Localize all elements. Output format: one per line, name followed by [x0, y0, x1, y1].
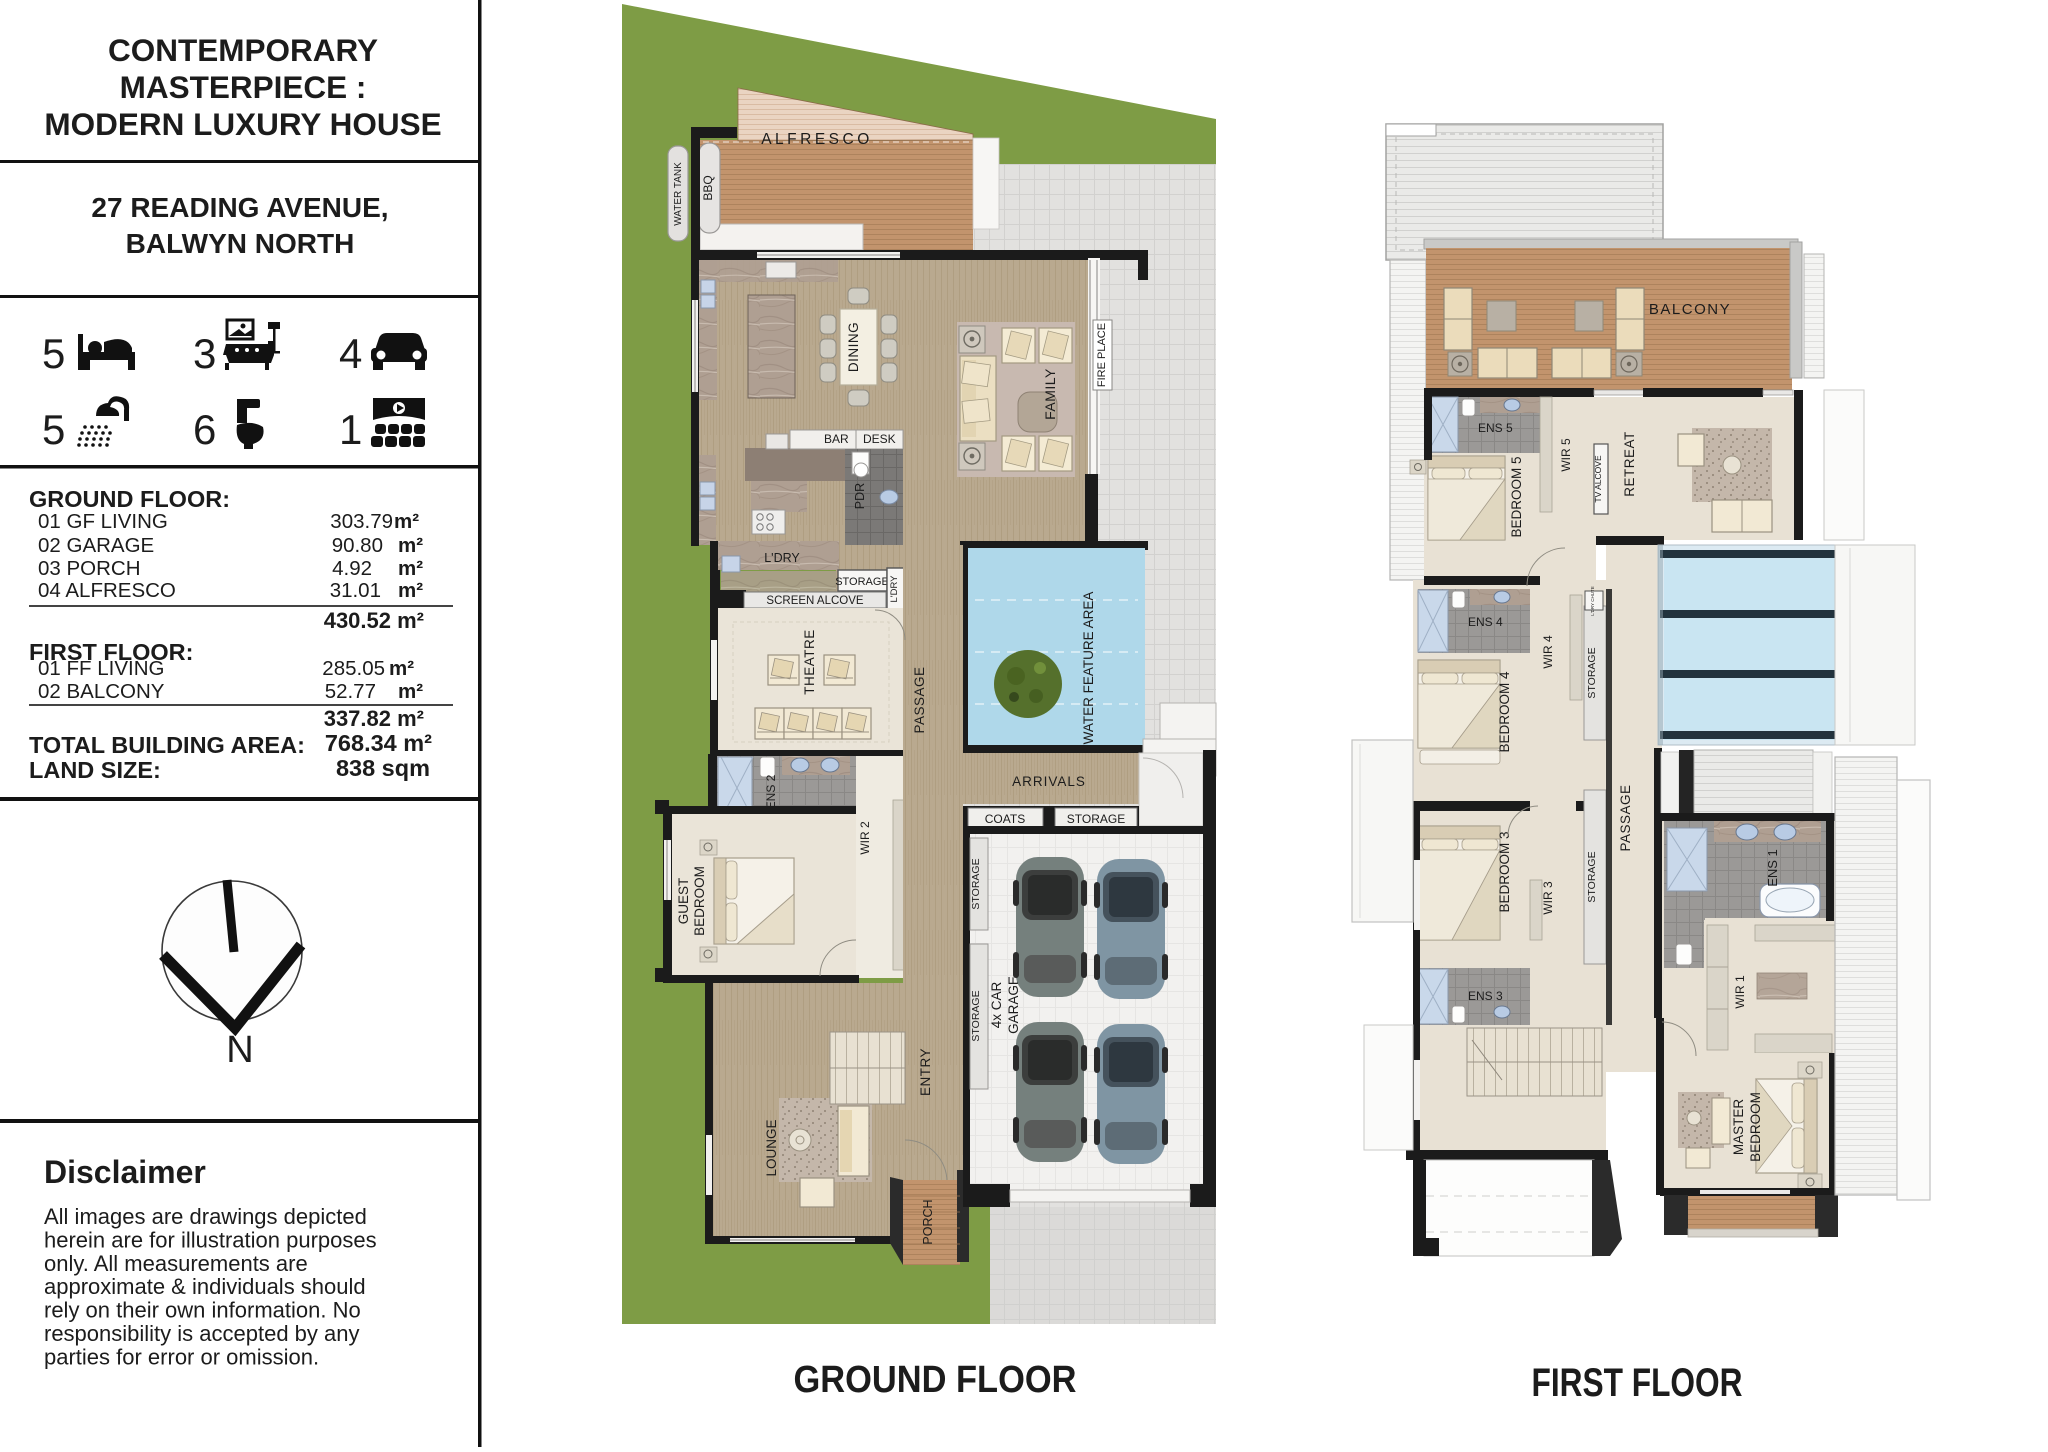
svg-text:FIRST FLOOR: FIRST FLOOR	[1532, 1361, 1743, 1405]
svg-text:WIR 3: WIR 3	[1541, 881, 1555, 915]
svg-text:COATS: COATS	[985, 812, 1025, 826]
svg-text:01 FF LIVING: 01 FF LIVING	[38, 657, 164, 680]
svg-text:LOUNGE: LOUNGE	[764, 1119, 779, 1176]
svg-text:THEATRE: THEATRE	[802, 629, 817, 695]
svg-text:ENTRY: ENTRY	[918, 1048, 933, 1096]
svg-text:SCREEN ALCOVE: SCREEN ALCOVE	[766, 595, 863, 607]
svg-text:BEDROOM 5: BEDROOM 5	[1509, 456, 1524, 537]
svg-text:02 GARAGE: 02 GARAGE	[38, 534, 154, 557]
svg-text:4x CAR: 4x CAR	[989, 981, 1004, 1028]
svg-text:CONTEMPORARY: CONTEMPORARY	[108, 32, 378, 68]
svg-text:5: 5	[42, 406, 65, 453]
svg-text:BEDROOM 3: BEDROOM 3	[1497, 831, 1512, 912]
svg-text:FAMILY: FAMILY	[1042, 368, 1058, 420]
svg-text:303.79: 303.79	[330, 510, 393, 533]
svg-text:PASSAGE: PASSAGE	[912, 666, 927, 733]
svg-text:PASSAGE: PASSAGE	[1618, 784, 1633, 851]
svg-text:GUEST: GUEST	[676, 878, 691, 925]
svg-text:27 READING AVENUE,: 27 READING AVENUE,	[91, 192, 388, 223]
svg-text:rely on their own information.: rely on their own information. No	[44, 1298, 361, 1323]
svg-text:31.01: 31.01	[330, 579, 381, 602]
svg-text:BEDROOM: BEDROOM	[692, 866, 707, 936]
svg-text:STORAGE: STORAGE	[1586, 851, 1598, 902]
svg-text:337.82 m²: 337.82 m²	[324, 706, 424, 731]
svg-text:WATER TANK: WATER TANK	[673, 162, 684, 226]
svg-text:02 BALCONY: 02 BALCONY	[38, 680, 165, 703]
svg-text:DESK: DESK	[863, 432, 896, 446]
svg-text:FIRE PLACE: FIRE PLACE	[1096, 323, 1108, 387]
svg-text:GROUND FLOOR:: GROUND FLOOR:	[29, 486, 230, 512]
svg-text:1: 1	[339, 406, 362, 453]
svg-text:WIR 5: WIR 5	[1559, 438, 1573, 472]
svg-text:768.34 m²: 768.34 m²	[325, 730, 432, 756]
svg-text:TOTAL BUILDING AREA:: TOTAL BUILDING AREA:	[29, 732, 305, 758]
svg-text:BALCONY: BALCONY	[1649, 301, 1731, 318]
svg-text:RETREAT: RETREAT	[1622, 431, 1637, 497]
svg-text:STORAGE: STORAGE	[1586, 647, 1598, 698]
svg-text:STORAGE: STORAGE	[970, 858, 982, 909]
svg-text:approximate & individuals shou: approximate & individuals should	[44, 1274, 366, 1299]
svg-text:MODERN LUXURY HOUSE: MODERN LUXURY HOUSE	[44, 106, 441, 142]
svg-text:WATER FEATURE AREA: WATER FEATURE AREA	[1081, 592, 1096, 745]
svg-text:MASTER: MASTER	[1731, 1099, 1746, 1156]
svg-text:MASTERPIECE :: MASTERPIECE :	[120, 69, 367, 105]
svg-text:04 ALFRESCO: 04 ALFRESCO	[38, 579, 176, 602]
svg-text:52.77: 52.77	[325, 680, 376, 703]
svg-text:3: 3	[193, 330, 216, 377]
svg-text:TV ALCOVE: TV ALCOVE	[1593, 455, 1603, 503]
svg-text:N: N	[226, 1029, 253, 1071]
svg-text:parties for error or omission.: parties for error or omission.	[44, 1344, 319, 1369]
svg-text:m²: m²	[398, 680, 423, 703]
svg-text:ENS 4: ENS 4	[1468, 615, 1503, 629]
svg-text:L'DRY: L'DRY	[764, 551, 800, 565]
svg-text:90.80: 90.80	[332, 534, 383, 557]
svg-text:m²: m²	[398, 579, 423, 602]
svg-text:BAR: BAR	[824, 432, 849, 446]
svg-text:ENS 2: ENS 2	[764, 774, 778, 809]
svg-text:ALFRESCO: ALFRESCO	[761, 131, 873, 148]
svg-text:430.52 m²: 430.52 m²	[324, 608, 424, 633]
svg-text:m²: m²	[394, 510, 419, 533]
svg-text:Disclaimer: Disclaimer	[44, 1154, 206, 1190]
svg-text:All images are drawings depict: All images are drawings depicted	[44, 1204, 367, 1229]
svg-text:WIR 4: WIR 4	[1541, 635, 1555, 669]
svg-text:WIR 1: WIR 1	[1733, 975, 1747, 1009]
svg-text:4: 4	[339, 330, 362, 377]
svg-text:5: 5	[42, 330, 65, 377]
svg-text:L'DRY: L'DRY	[889, 575, 900, 603]
svg-text:4.92: 4.92	[332, 557, 372, 580]
svg-text:DINING: DINING	[846, 322, 861, 372]
svg-text:03 PORCH: 03 PORCH	[38, 557, 141, 580]
svg-text:m²: m²	[398, 534, 423, 557]
svg-text:ENS 1: ENS 1	[1765, 849, 1780, 887]
svg-text:BBQ: BBQ	[701, 175, 715, 200]
svg-text:PORCH: PORCH	[921, 1199, 935, 1244]
svg-text:WIR 2: WIR 2	[858, 821, 872, 855]
svg-text:838 sqm: 838 sqm	[336, 755, 430, 781]
svg-text:m²: m²	[389, 657, 414, 680]
svg-text:LAND SIZE:: LAND SIZE:	[29, 757, 161, 783]
svg-text:GROUND FLOOR: GROUND FLOOR	[794, 1359, 1077, 1401]
svg-text:STORAGE: STORAGE	[835, 576, 889, 588]
svg-text:STORAGE: STORAGE	[970, 990, 982, 1041]
svg-text:STORAGE: STORAGE	[1067, 812, 1125, 826]
svg-text:only. All measurements are: only. All measurements are	[44, 1251, 308, 1276]
svg-text:ENS 3: ENS 3	[1468, 989, 1503, 1003]
svg-text:6: 6	[193, 406, 216, 453]
svg-text:ARRIVALS: ARRIVALS	[1012, 774, 1086, 789]
svg-text:BEDROOM 4: BEDROOM 4	[1497, 671, 1512, 753]
svg-text:BEDROOM: BEDROOM	[1748, 1092, 1763, 1162]
svg-text:responsibility is accepted by: responsibility is accepted by any	[44, 1321, 360, 1346]
svg-text:L'DRY CHUTE: L'DRY CHUTE	[1590, 586, 1595, 615]
svg-text:ENS 5: ENS 5	[1478, 421, 1513, 435]
svg-text:m²: m²	[398, 557, 423, 580]
svg-text:herein are for illustration pu: herein are for illustration purposes	[44, 1227, 377, 1252]
svg-text:01 GF LIVING: 01 GF LIVING	[38, 510, 168, 533]
svg-text:BALWYN NORTH: BALWYN NORTH	[126, 228, 355, 259]
svg-text:PDR: PDR	[853, 483, 867, 509]
svg-text:285.05: 285.05	[322, 657, 385, 680]
